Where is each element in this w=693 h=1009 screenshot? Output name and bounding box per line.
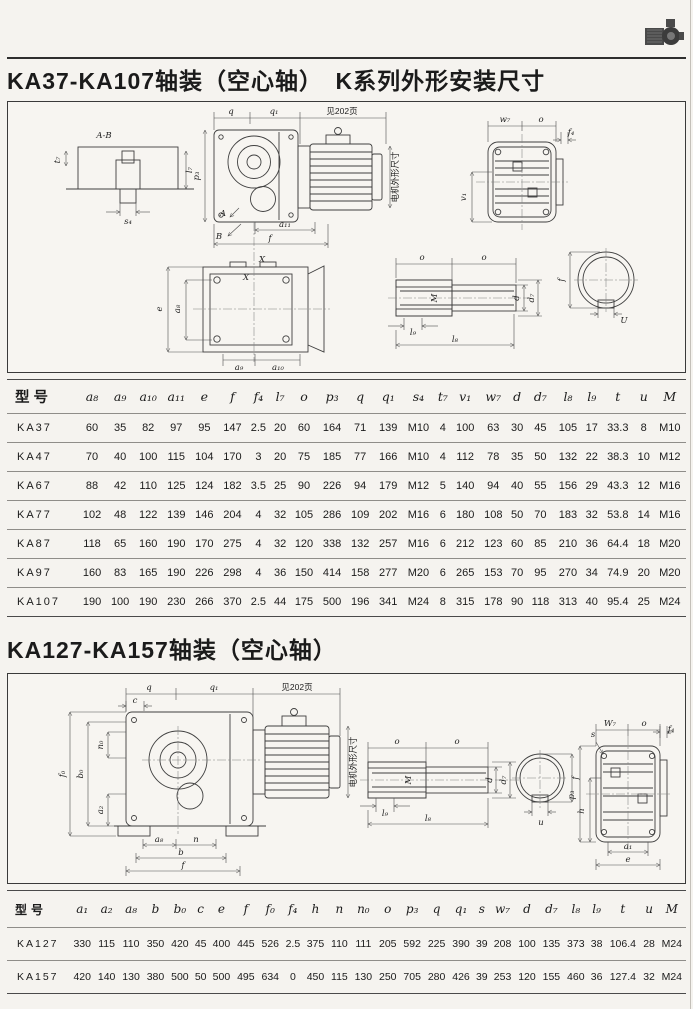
value-cell: 341 bbox=[374, 588, 402, 617]
dim-label: l₈ bbox=[425, 814, 432, 824]
dimension-column-header: a₂ bbox=[94, 891, 118, 928]
header-row: 型号a₁a₂a₈bb₀ceff₀f₄hnn₀op₃qq₁sw₇dd₇l₈l₉tu… bbox=[7, 891, 686, 928]
model-cell: KA67 bbox=[7, 472, 78, 501]
dim-label: q₁ bbox=[270, 107, 279, 117]
value-cell: 226 bbox=[190, 559, 218, 588]
dimension-column-header: f₀ bbox=[258, 891, 282, 928]
value-cell: 42 bbox=[106, 472, 134, 501]
value-cell: M10 bbox=[654, 414, 686, 443]
value-cell: 111 bbox=[351, 928, 375, 961]
model-cell: KA37 bbox=[7, 414, 78, 443]
dim-label: l₉ bbox=[410, 328, 417, 338]
value-cell: 18 bbox=[634, 530, 654, 559]
value-cell: 8 bbox=[634, 414, 654, 443]
dimension-column-header: q bbox=[346, 380, 374, 414]
value-cell: M16 bbox=[402, 530, 434, 559]
value-cell: 39 bbox=[473, 961, 490, 994]
dim-label: a₉ bbox=[235, 363, 244, 372]
value-cell: 140 bbox=[451, 472, 479, 501]
value-cell: 88 bbox=[78, 472, 106, 501]
dim-label: a₁ bbox=[624, 842, 632, 852]
dim-label: s₄ bbox=[124, 217, 132, 227]
dim-label: u bbox=[538, 818, 543, 828]
dimension-column-header: q₁ bbox=[374, 380, 402, 414]
dim-label: a₁₁ bbox=[279, 220, 291, 230]
value-cell: 97 bbox=[162, 414, 190, 443]
value-cell: 17 bbox=[582, 414, 602, 443]
value-cell: 104 bbox=[190, 443, 218, 472]
value-cell: 85 bbox=[527, 530, 554, 559]
value-cell: 500 bbox=[318, 588, 346, 617]
dim-label: X bbox=[258, 255, 266, 265]
value-cell: 28 bbox=[641, 928, 658, 961]
model-cell: KA77 bbox=[7, 501, 78, 530]
dimension-column-header: f bbox=[218, 380, 246, 414]
value-cell: 634 bbox=[258, 961, 282, 994]
dim-label: v₁ bbox=[459, 193, 469, 201]
value-cell: 338 bbox=[318, 530, 346, 559]
dim-label: W₇ bbox=[604, 719, 617, 729]
dim-label: s bbox=[591, 730, 596, 740]
value-cell: 25 bbox=[270, 472, 290, 501]
dim-label: d₇ bbox=[527, 293, 537, 302]
value-cell: 70 bbox=[507, 559, 527, 588]
value-cell: 180 bbox=[451, 501, 479, 530]
dim-label: U bbox=[620, 316, 628, 326]
dim-label: h bbox=[577, 808, 587, 813]
dim-label: 电机外形尺寸 bbox=[390, 151, 400, 203]
dim-label: a₁₀ bbox=[272, 363, 284, 372]
dim-label: 见202页 bbox=[281, 682, 312, 692]
value-cell: 370 bbox=[218, 588, 246, 617]
value-cell: 38.3 bbox=[602, 443, 634, 472]
value-cell: 139 bbox=[162, 501, 190, 530]
dim-label: d bbox=[485, 777, 495, 783]
value-cell: 313 bbox=[554, 588, 582, 617]
value-cell: 125 bbox=[162, 472, 190, 501]
value-cell: 40 bbox=[507, 472, 527, 501]
ka37-ka107-table: 型号a₈a₉a₁₀a₁₁eff₄l₇op₃qq₁s₄t₇v₁w₇dd₇l₈l₉t… bbox=[7, 380, 686, 616]
value-cell: 166 bbox=[374, 443, 402, 472]
model-cell: KA47 bbox=[7, 443, 78, 472]
dimension-column-header: w₇ bbox=[490, 891, 514, 928]
value-cell: 2.5 bbox=[246, 588, 270, 617]
value-cell: 190 bbox=[78, 588, 106, 617]
dimension-column-header: h bbox=[303, 891, 327, 928]
value-cell: 208 bbox=[490, 928, 514, 961]
value-cell: 139 bbox=[374, 414, 402, 443]
value-cell: 190 bbox=[162, 559, 190, 588]
dim-label: e bbox=[625, 855, 630, 865]
dim-label: o bbox=[394, 737, 399, 747]
value-cell: 108 bbox=[479, 501, 507, 530]
value-cell: 95 bbox=[190, 414, 218, 443]
table-row: KA127330115110350420454004455262.5375110… bbox=[7, 928, 686, 961]
value-cell: 210 bbox=[554, 530, 582, 559]
value-cell: 226 bbox=[318, 472, 346, 501]
value-cell: 71 bbox=[346, 414, 374, 443]
value-cell: 120 bbox=[515, 961, 539, 994]
value-cell: 36 bbox=[588, 961, 605, 994]
dimension-column-header: d₇ bbox=[539, 891, 563, 928]
value-cell: 266 bbox=[190, 588, 218, 617]
dim-label: l₉ bbox=[382, 809, 389, 819]
value-cell: 3.5 bbox=[246, 472, 270, 501]
value-cell: 115 bbox=[94, 928, 118, 961]
dim-label: b bbox=[178, 848, 183, 858]
value-cell: 95 bbox=[527, 559, 554, 588]
value-cell: 460 bbox=[564, 961, 588, 994]
dim-label: d bbox=[512, 295, 522, 301]
dimension-table-ka127-ka157: 型号a₁a₂a₈bb₀ceff₀f₄hnn₀op₃qq₁sw₇dd₇l₈l₉tu… bbox=[7, 890, 686, 994]
dimension-column-header: o bbox=[290, 380, 318, 414]
value-cell: M12 bbox=[402, 472, 434, 501]
value-cell: M16 bbox=[402, 501, 434, 530]
dim-label: n bbox=[193, 835, 198, 845]
value-cell: M10 bbox=[402, 443, 434, 472]
value-cell: 35 bbox=[106, 414, 134, 443]
dimension-column-header: l₉ bbox=[588, 891, 605, 928]
value-cell: 373 bbox=[564, 928, 588, 961]
value-cell: 175 bbox=[290, 588, 318, 617]
value-cell: 212 bbox=[451, 530, 479, 559]
dimension-column-header: a₁ bbox=[70, 891, 94, 928]
dim-label: q₁ bbox=[210, 683, 219, 693]
value-cell: 78 bbox=[479, 443, 507, 472]
value-cell: 123 bbox=[479, 530, 507, 559]
value-cell: 132 bbox=[554, 443, 582, 472]
dim-label: q bbox=[228, 107, 234, 117]
table-row: KA6788421101251241823.5259022694179M1251… bbox=[7, 472, 686, 501]
model-cell: KA87 bbox=[7, 530, 78, 559]
dimension-column-header: t bbox=[605, 891, 640, 928]
value-cell: 130 bbox=[351, 961, 375, 994]
value-cell: 95.4 bbox=[602, 588, 634, 617]
dimension-column-header: n bbox=[328, 891, 351, 928]
value-cell: 115 bbox=[328, 961, 351, 994]
catalog-page: KA37-KA107轴装（空心轴） K系列外形安装尺寸 bbox=[0, 0, 693, 1009]
value-cell: 50 bbox=[192, 961, 209, 994]
dim-label: w₇ bbox=[500, 115, 511, 125]
drawing-box-ka37-ka107: A-Bt₇l₇s₄qq₁见202页p₃ABa₁₁fXX电机外形尺寸w₇of₄v₁… bbox=[7, 101, 686, 373]
value-cell: 350 bbox=[143, 928, 167, 961]
dim-label: M bbox=[430, 293, 440, 303]
dimension-column-header: l₇ bbox=[270, 380, 290, 414]
value-cell: 2.5 bbox=[246, 414, 270, 443]
value-cell: 202 bbox=[374, 501, 402, 530]
value-cell: 60 bbox=[507, 530, 527, 559]
value-cell: 10 bbox=[634, 443, 654, 472]
value-cell: 94 bbox=[479, 472, 507, 501]
value-cell: 112 bbox=[451, 443, 479, 472]
value-cell: M20 bbox=[402, 559, 434, 588]
dimension-column-header: c bbox=[192, 891, 209, 928]
value-cell: 190 bbox=[134, 588, 162, 617]
value-cell: 100 bbox=[515, 928, 539, 961]
dimension-column-header: f₄ bbox=[246, 380, 270, 414]
value-cell: 120 bbox=[290, 530, 318, 559]
dimension-column-header: l₉ bbox=[582, 380, 602, 414]
value-cell: 20 bbox=[270, 414, 290, 443]
value-cell: 40 bbox=[582, 588, 602, 617]
dim-label: o bbox=[419, 253, 424, 263]
dim-label: M bbox=[404, 775, 414, 785]
value-cell: M20 bbox=[654, 530, 686, 559]
value-cell: 380 bbox=[143, 961, 167, 994]
dim-label: A-B bbox=[95, 131, 111, 141]
value-cell: 110 bbox=[119, 928, 143, 961]
value-cell: 100 bbox=[134, 443, 162, 472]
dimension-column-header: u bbox=[641, 891, 658, 928]
value-cell: 230 bbox=[162, 588, 190, 617]
dim-label: l₈ bbox=[452, 335, 459, 345]
value-cell: 94 bbox=[346, 472, 374, 501]
value-cell: 53.8 bbox=[602, 501, 634, 530]
dimension-column-header: e bbox=[190, 380, 218, 414]
value-cell: 55 bbox=[527, 472, 554, 501]
dim-label: d₇ bbox=[499, 775, 509, 784]
value-cell: 90 bbox=[507, 588, 527, 617]
value-cell: 156 bbox=[554, 472, 582, 501]
value-cell: 32 bbox=[582, 501, 602, 530]
value-cell: M24 bbox=[654, 588, 686, 617]
dimension-column-header: u bbox=[634, 380, 654, 414]
technical-drawing-1: A-Bt₇l₇s₄qq₁见202页p₃ABa₁₁fXX电机外形尺寸w₇of₄v₁… bbox=[8, 102, 685, 372]
dim-label: 见202页 bbox=[326, 106, 357, 116]
dim-label: X bbox=[242, 273, 250, 283]
value-cell: 60 bbox=[78, 414, 106, 443]
dimension-column-header: a₁₁ bbox=[162, 380, 190, 414]
value-cell: 400 bbox=[209, 928, 233, 961]
value-cell: 20 bbox=[270, 443, 290, 472]
value-cell: 183 bbox=[554, 501, 582, 530]
value-cell: 420 bbox=[70, 961, 94, 994]
value-cell: 592 bbox=[400, 928, 424, 961]
dimension-column-header: b bbox=[143, 891, 167, 928]
table-row: KA3760358297951472.5206016471139M1041006… bbox=[7, 414, 686, 443]
value-cell: 124 bbox=[190, 472, 218, 501]
value-cell: 102 bbox=[78, 501, 106, 530]
value-cell: 50 bbox=[527, 443, 554, 472]
dim-label: a₈ bbox=[155, 835, 164, 845]
value-cell: 330 bbox=[70, 928, 94, 961]
dim-label: o bbox=[481, 253, 486, 263]
dimension-column-header: v₁ bbox=[451, 380, 479, 414]
value-cell: 43.3 bbox=[602, 472, 634, 501]
value-cell: 160 bbox=[78, 559, 106, 588]
dim-label: f₄ bbox=[567, 128, 575, 138]
table-row: KA4770401001151041703207518577166M104112… bbox=[7, 443, 686, 472]
value-cell: M24 bbox=[658, 928, 686, 961]
dim-label: a₂ bbox=[96, 805, 106, 814]
value-cell: 420 bbox=[168, 928, 192, 961]
dimension-column-header: f₄ bbox=[282, 891, 303, 928]
value-cell: 118 bbox=[527, 588, 554, 617]
dimension-column-header: n₀ bbox=[351, 891, 375, 928]
dimension-column-header: f bbox=[234, 891, 258, 928]
dimension-column-header: q₁ bbox=[449, 891, 473, 928]
value-cell: 265 bbox=[451, 559, 479, 588]
value-cell: M20 bbox=[654, 559, 686, 588]
value-cell: M10 bbox=[402, 414, 434, 443]
dimension-column-header: M bbox=[658, 891, 686, 928]
dim-label: q bbox=[146, 683, 152, 693]
value-cell: 25 bbox=[634, 588, 654, 617]
value-cell: 170 bbox=[218, 443, 246, 472]
value-cell: 275 bbox=[218, 530, 246, 559]
value-cell: 50 bbox=[507, 501, 527, 530]
value-cell: 36 bbox=[582, 530, 602, 559]
dimension-column-header: l₈ bbox=[564, 891, 588, 928]
dim-label: c bbox=[133, 696, 138, 706]
model-cell: KA97 bbox=[7, 559, 78, 588]
value-cell: 34 bbox=[582, 559, 602, 588]
table-row: KA1071901001902302663702.544175500196341… bbox=[7, 588, 686, 617]
technical-drawing-2: qq₁见202页cn₀f₀b₀a₂a₈nbf电机外形尺寸ooMdd₇l₉l₈fu… bbox=[8, 674, 685, 883]
value-cell: 130 bbox=[119, 961, 143, 994]
value-cell: 105 bbox=[554, 414, 582, 443]
dimension-column-header: M bbox=[654, 380, 686, 414]
dimension-column-header: s bbox=[473, 891, 490, 928]
value-cell: 179 bbox=[374, 472, 402, 501]
dim-label: o bbox=[538, 115, 543, 125]
value-cell: 155 bbox=[539, 961, 563, 994]
drawing-box-ka127-ka157: qq₁见202页cn₀f₀b₀a₂a₈nbf电机外形尺寸ooMdd₇l₉l₈fu… bbox=[7, 673, 686, 884]
dimension-column-header: t bbox=[602, 380, 634, 414]
value-cell: 38 bbox=[588, 928, 605, 961]
value-cell: 6 bbox=[435, 559, 452, 588]
value-cell: 178 bbox=[479, 588, 507, 617]
table-row: KA15742014013038050050500495634045011513… bbox=[7, 961, 686, 994]
dim-label: f₄ bbox=[667, 725, 675, 735]
value-cell: 115 bbox=[162, 443, 190, 472]
value-cell: 105 bbox=[290, 501, 318, 530]
value-cell: 29 bbox=[582, 472, 602, 501]
value-cell: 44 bbox=[270, 588, 290, 617]
value-cell: 280 bbox=[424, 961, 448, 994]
value-cell: 150 bbox=[290, 559, 318, 588]
value-cell: 8 bbox=[435, 588, 452, 617]
value-cell: 70 bbox=[78, 443, 106, 472]
value-cell: 253 bbox=[490, 961, 514, 994]
dimension-column-header: e bbox=[209, 891, 233, 928]
value-cell: 146 bbox=[190, 501, 218, 530]
value-cell: 100 bbox=[451, 414, 479, 443]
value-cell: 390 bbox=[449, 928, 473, 961]
value-cell: 4 bbox=[246, 530, 270, 559]
value-cell: 450 bbox=[303, 961, 327, 994]
dim-label: a₈ bbox=[173, 304, 183, 313]
value-cell: 170 bbox=[190, 530, 218, 559]
value-cell: M16 bbox=[654, 472, 686, 501]
value-cell: 90 bbox=[290, 472, 318, 501]
dim-label: o bbox=[641, 719, 646, 729]
value-cell: 82 bbox=[134, 414, 162, 443]
value-cell: 225 bbox=[424, 928, 448, 961]
value-cell: 3 bbox=[246, 443, 270, 472]
value-cell: M16 bbox=[654, 501, 686, 530]
value-cell: 39 bbox=[473, 928, 490, 961]
top-rule bbox=[7, 0, 686, 59]
value-cell: 63 bbox=[479, 414, 507, 443]
drawing1-dim-labels: A-Bt₇l₇s₄qq₁见202页p₃ABa₁₁fXX电机外形尺寸w₇of₄v₁… bbox=[53, 106, 628, 372]
value-cell: 20 bbox=[634, 559, 654, 588]
dim-label: o bbox=[454, 737, 459, 747]
value-cell: 185 bbox=[318, 443, 346, 472]
value-cell: 106.4 bbox=[605, 928, 640, 961]
dim-label: n₀ bbox=[96, 740, 106, 749]
gearmotor-icon bbox=[644, 15, 684, 51]
value-cell: 140 bbox=[94, 961, 118, 994]
dimension-column-header: o bbox=[376, 891, 400, 928]
value-cell: 40 bbox=[106, 443, 134, 472]
value-cell: 60 bbox=[290, 414, 318, 443]
dimension-column-header: a₈ bbox=[78, 380, 106, 414]
value-cell: 12 bbox=[634, 472, 654, 501]
value-cell: 196 bbox=[346, 588, 374, 617]
value-cell: 250 bbox=[376, 961, 400, 994]
value-cell: 4 bbox=[435, 443, 452, 472]
header-row: 型号a₈a₉a₁₀a₁₁eff₄l₇op₃qq₁s₄t₇v₁w₇dd₇l₈l₉t… bbox=[7, 380, 686, 414]
value-cell: M12 bbox=[654, 443, 686, 472]
value-cell: 526 bbox=[258, 928, 282, 961]
value-cell: 32 bbox=[270, 530, 290, 559]
value-cell: 426 bbox=[449, 961, 473, 994]
value-cell: 48 bbox=[106, 501, 134, 530]
value-cell: 30 bbox=[507, 414, 527, 443]
value-cell: 2.5 bbox=[282, 928, 303, 961]
dimension-column-header: p₃ bbox=[318, 380, 346, 414]
value-cell: 315 bbox=[451, 588, 479, 617]
value-cell: 375 bbox=[303, 928, 327, 961]
value-cell: 45 bbox=[192, 928, 209, 961]
dimension-column-header: p₃ bbox=[400, 891, 424, 928]
value-cell: 6 bbox=[435, 530, 452, 559]
value-cell: 14 bbox=[634, 501, 654, 530]
value-cell: 32 bbox=[641, 961, 658, 994]
table-row: KA8711865160190170275432120338132257M166… bbox=[7, 530, 686, 559]
value-cell: 182 bbox=[218, 472, 246, 501]
value-cell: 153 bbox=[479, 559, 507, 588]
value-cell: 135 bbox=[539, 928, 563, 961]
value-cell: 110 bbox=[328, 928, 351, 961]
value-cell: 160 bbox=[134, 530, 162, 559]
dim-label: f bbox=[180, 861, 186, 871]
dimension-column-header: a₉ bbox=[106, 380, 134, 414]
value-cell: 270 bbox=[554, 559, 582, 588]
value-cell: 298 bbox=[218, 559, 246, 588]
value-cell: 109 bbox=[346, 501, 374, 530]
value-cell: 100 bbox=[106, 588, 134, 617]
dimension-column-header: a₈ bbox=[119, 891, 143, 928]
value-cell: 286 bbox=[318, 501, 346, 530]
value-cell: 118 bbox=[78, 530, 106, 559]
value-cell: 110 bbox=[134, 472, 162, 501]
value-cell: 158 bbox=[346, 559, 374, 588]
value-cell: 705 bbox=[400, 961, 424, 994]
value-cell: 495 bbox=[234, 961, 258, 994]
ka127-ka157-table: 型号a₁a₂a₈bb₀ceff₀f₄hnn₀op₃qq₁sw₇dd₇l₈l₉tu… bbox=[7, 891, 686, 993]
dimension-column-header: d₇ bbox=[527, 380, 554, 414]
model-column-header: 型号 bbox=[7, 380, 78, 414]
value-cell: 6 bbox=[435, 501, 452, 530]
value-cell: 204 bbox=[218, 501, 246, 530]
value-cell: 35 bbox=[507, 443, 527, 472]
dim-label: A bbox=[219, 209, 226, 219]
dimension-column-header: b₀ bbox=[168, 891, 192, 928]
value-cell: 414 bbox=[318, 559, 346, 588]
model-cell: KA157 bbox=[7, 961, 70, 994]
